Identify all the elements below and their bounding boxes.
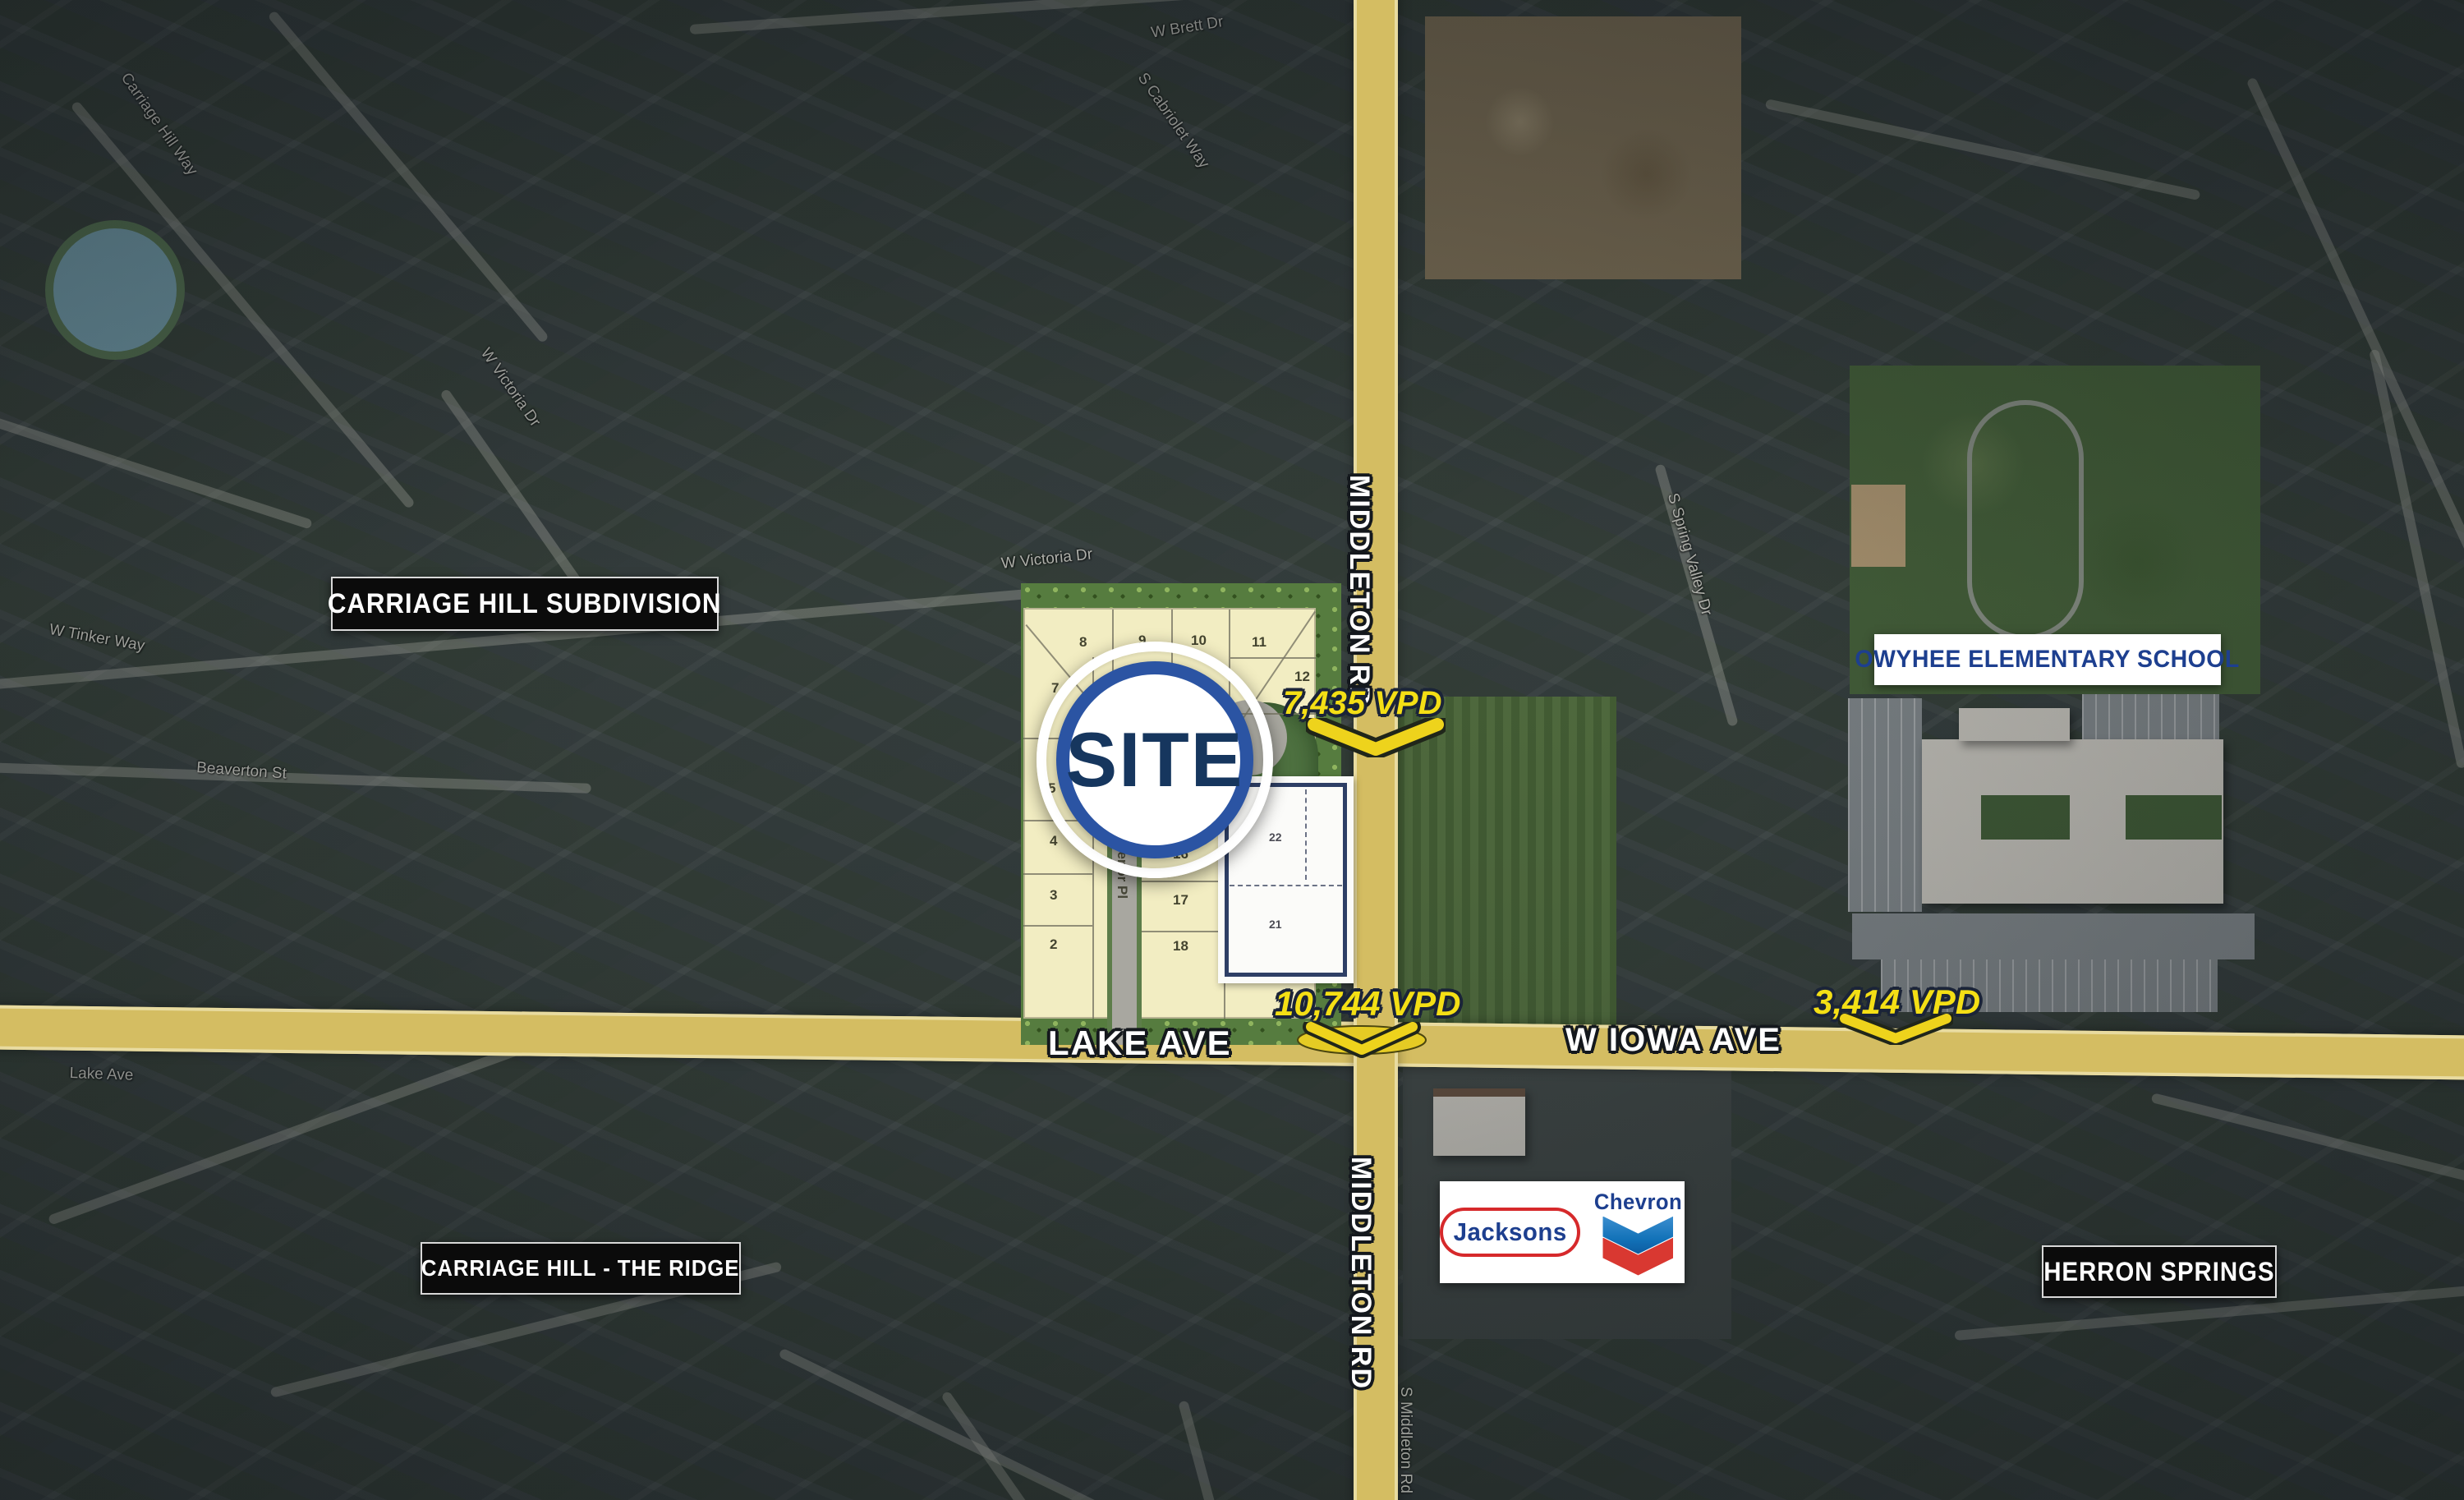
brand-logo-box: Jacksons Chevron: [1440, 1181, 1685, 1283]
lot-number: 3: [1050, 887, 1057, 904]
plat-lot-number: 22: [1269, 831, 1282, 844]
lot-number: 2: [1050, 936, 1057, 953]
site-label: SITE: [1066, 715, 1244, 804]
label-text: HERRON SPRINGS: [2043, 1257, 2274, 1287]
label-text: CARRIAGE HILL - THE RIDGE: [421, 1255, 739, 1281]
plat-lot-divider: [1230, 885, 1342, 886]
lot-line: [1023, 873, 1092, 875]
plat-easement-line: [1305, 789, 1307, 880]
lot-line: [1230, 657, 1316, 659]
traffic-arrow-icon: [1294, 1022, 1429, 1058]
traffic-count-lake-ave: 10,744 VPD: [1275, 984, 1461, 1024]
road-label-text: MIDDLETON RD: [1345, 1157, 1377, 1390]
aerial-site-map: W Victoria Dr W Victoria Dr Carriage Hil…: [0, 0, 2464, 1500]
jacksons-logo: Jacksons: [1440, 1208, 1580, 1257]
road-label-w-iowa-ave: W IOWA AVE: [1565, 1022, 1781, 1059]
traffic-arrow-icon: [1306, 718, 1446, 757]
lot-number: 10: [1191, 633, 1207, 649]
street-label-s-middleton: S Middleton Rd: [1396, 1387, 1414, 1493]
traffic-count-middleton-north: 7,435 VPD: [1283, 685, 1441, 722]
label-carriage-hill-the-ridge: CARRIAGE HILL - THE RIDGE: [421, 1242, 741, 1295]
label-carriage-hill-subdivision: CARRIAGE HILL SUBDIVISION: [331, 577, 719, 631]
lot-number: 8: [1079, 634, 1087, 651]
plat-lot-number: 21: [1269, 918, 1282, 931]
road-label-lake-ave: LAKE AVE: [1048, 1024, 1232, 1063]
lot-line: [1140, 931, 1224, 932]
site-marker: SITE: [1056, 661, 1253, 858]
lot-number: 4: [1050, 833, 1057, 849]
jacksons-logo-text: Jacksons: [1453, 1217, 1566, 1247]
label-text: CARRIAGE HILL SUBDIVISION: [328, 588, 721, 620]
road-label-middleton-south: MIDDLETON RD: [1344, 1157, 1377, 1380]
label-owyhee-elementary: OWYHEE ELEMENTARY SCHOOL: [1874, 634, 2221, 685]
lot-number: 11: [1252, 634, 1266, 651]
lot-line: [1140, 881, 1224, 882]
lot-number: 17: [1173, 892, 1188, 909]
lot-number: 18: [1173, 938, 1188, 955]
road-label-middleton-north: MIDDLETON RD: [1342, 475, 1375, 697]
chevron-logo-text: Chevron: [1594, 1189, 1682, 1215]
lot-line: [1023, 925, 1092, 927]
lot-number: 12: [1294, 669, 1310, 685]
label-text: OWYHEE ELEMENTARY SCHOOL: [1855, 646, 2240, 674]
chevron-logo: Chevron: [1592, 1189, 1685, 1276]
label-herron-springs: HERRON SPRINGS: [2042, 1245, 2277, 1298]
road-label-text: MIDDLETON RD: [1344, 475, 1375, 708]
traffic-arrow-icon: [1838, 1014, 1953, 1045]
